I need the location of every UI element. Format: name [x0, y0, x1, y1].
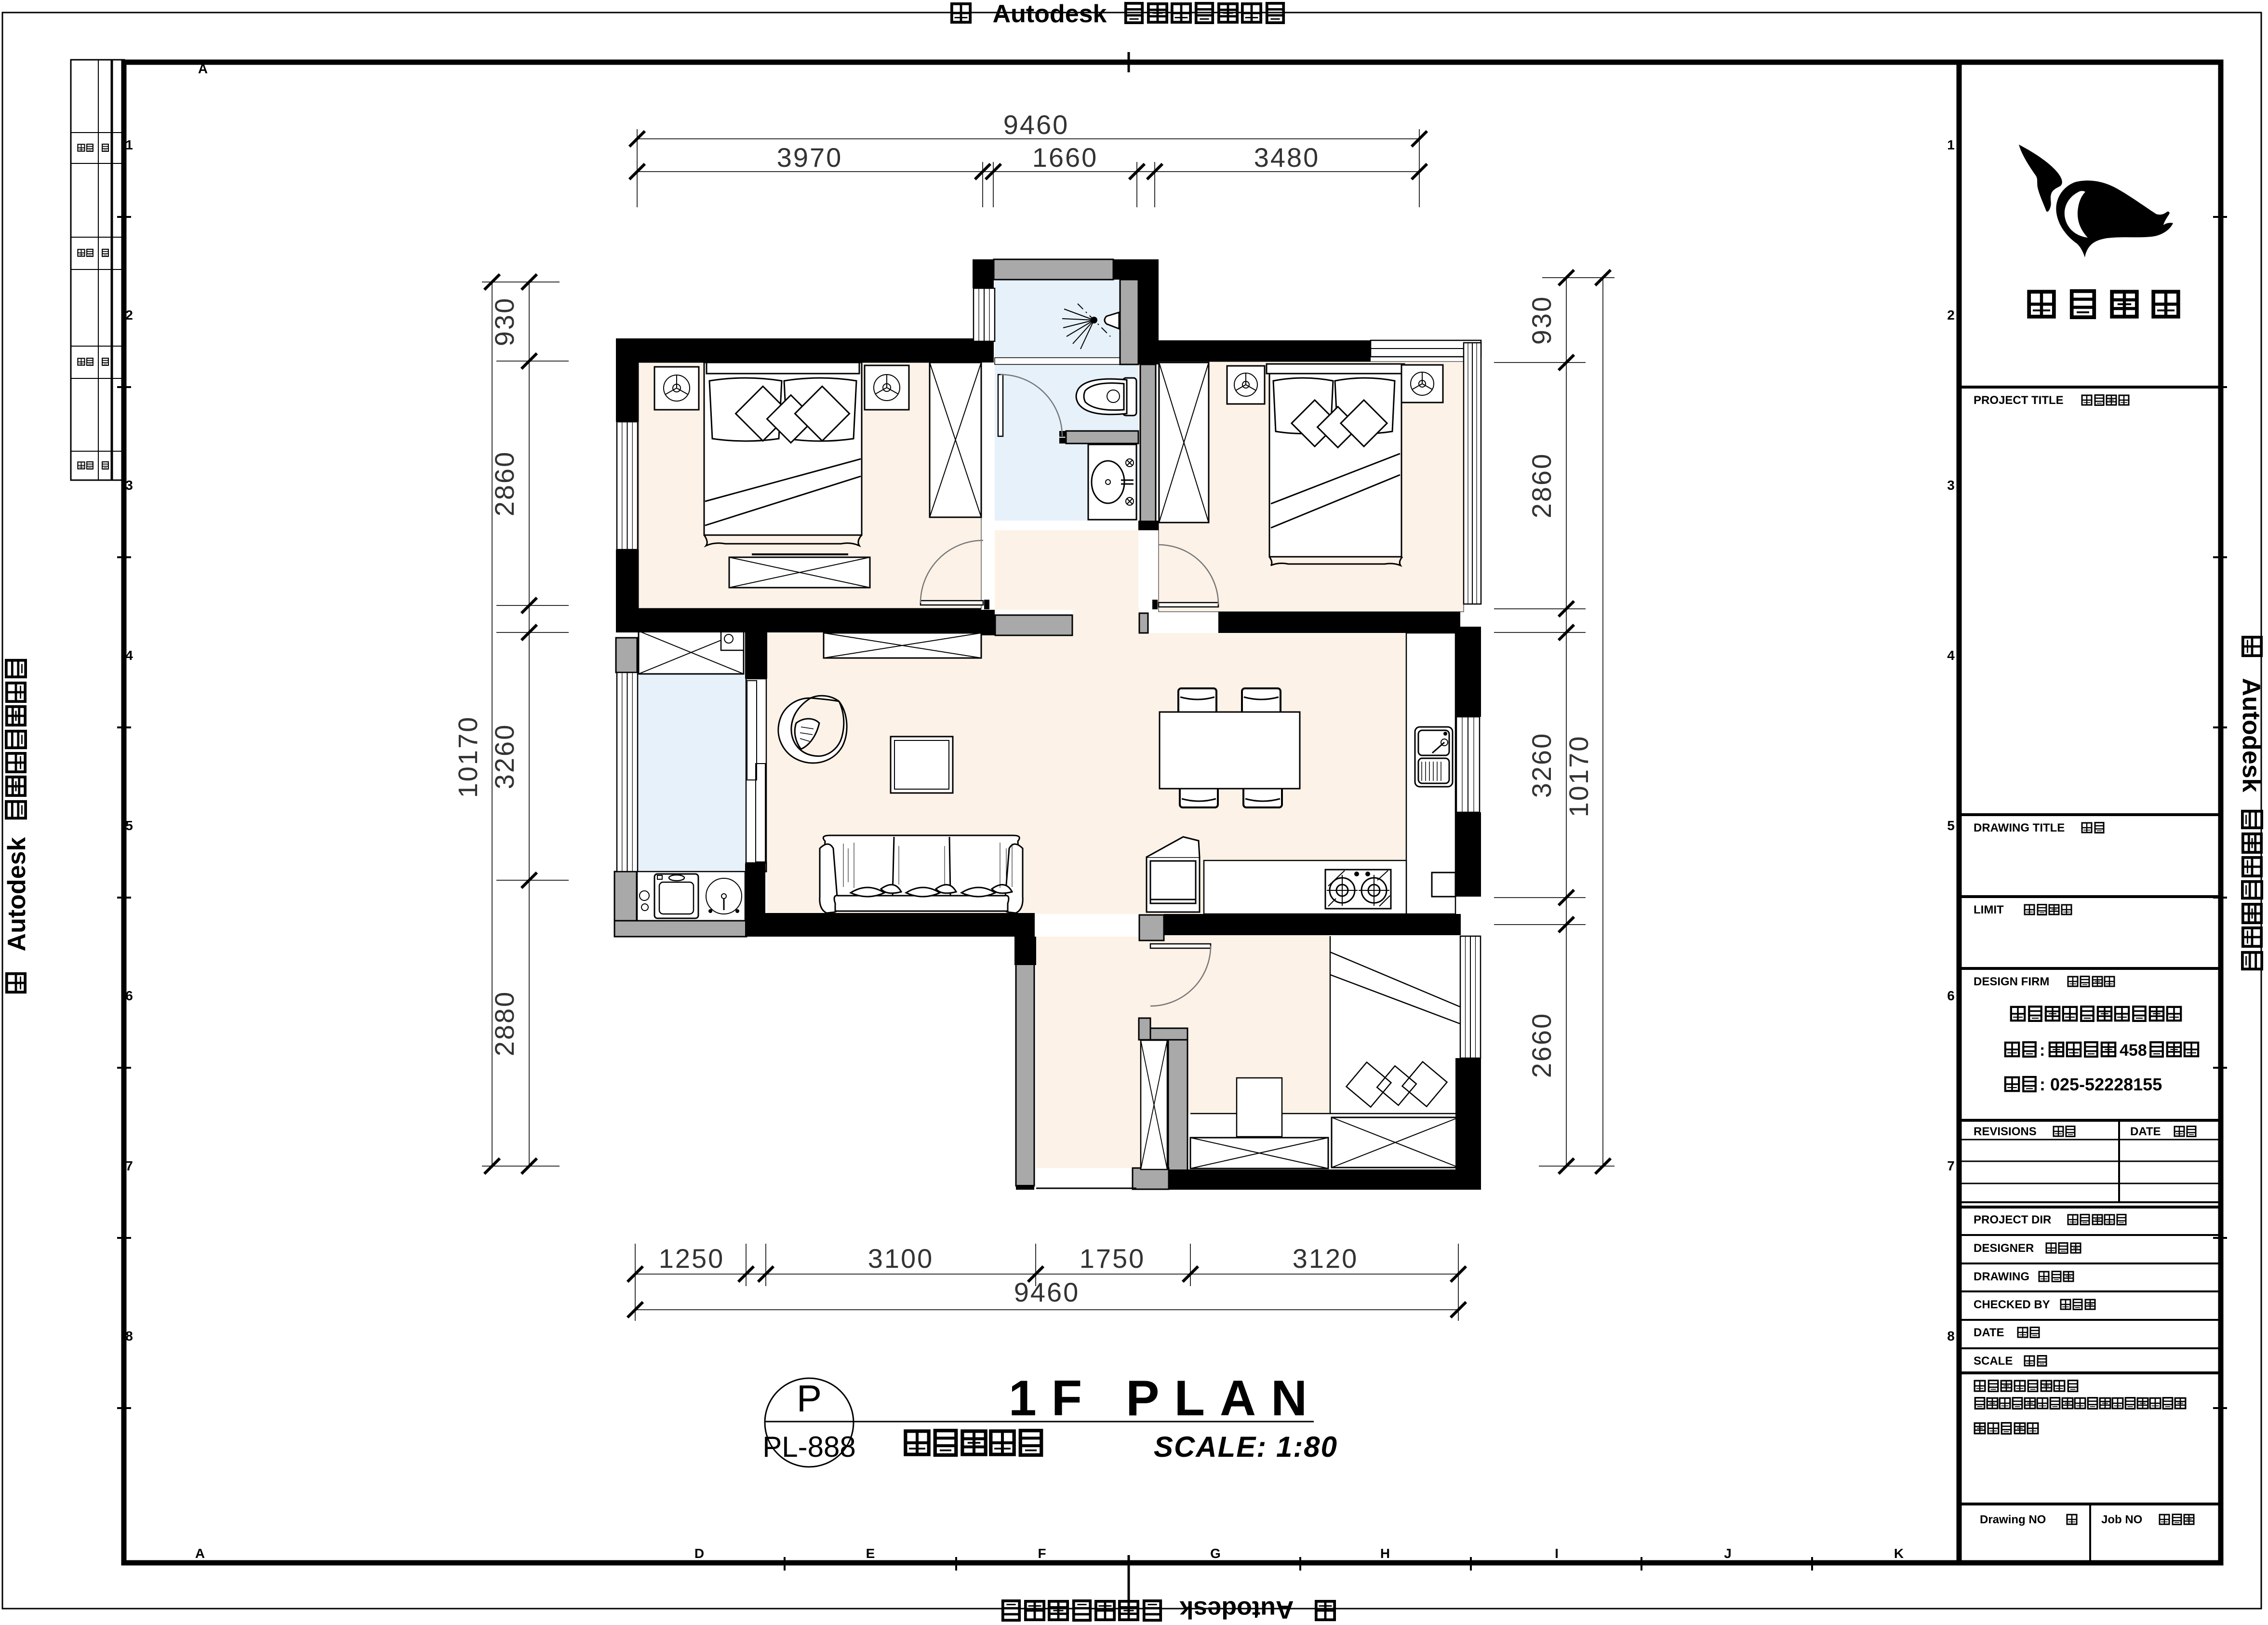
- svg-text:D: D: [694, 1546, 704, 1561]
- svg-text:PROJECT TITLE: PROJECT TITLE: [1974, 394, 2064, 407]
- svg-text:2660: 2660: [1526, 1012, 1557, 1078]
- svg-text:8: 8: [125, 1329, 133, 1343]
- svg-text:1: 1: [1947, 137, 1955, 152]
- svg-text:3970: 3970: [777, 142, 843, 173]
- svg-text:3260: 3260: [489, 724, 520, 790]
- svg-text:Job NO: Job NO: [2101, 1513, 2142, 1526]
- svg-text:2: 2: [125, 308, 133, 322]
- svg-text:930: 930: [489, 297, 520, 346]
- svg-text:Autodesk: Autodesk: [2237, 678, 2265, 792]
- svg-text:5: 5: [125, 818, 133, 833]
- svg-text:K: K: [1894, 1546, 1904, 1561]
- svg-text:E: E: [866, 1546, 875, 1561]
- svg-text:1660: 1660: [1032, 142, 1098, 173]
- svg-text:9460: 9460: [1003, 109, 1069, 140]
- svg-text:3120: 3120: [1293, 1243, 1359, 1274]
- svg-text:3100: 3100: [868, 1243, 934, 1274]
- svg-text:7: 7: [1947, 1158, 1955, 1173]
- svg-text:CHECKED BY: CHECKED BY: [1974, 1298, 2050, 1311]
- svg-text:2860: 2860: [489, 451, 520, 517]
- svg-text:Autodesk: Autodesk: [1179, 1596, 1294, 1624]
- svg-text:10170: 10170: [453, 716, 483, 798]
- svg-text:3480: 3480: [1254, 142, 1320, 173]
- svg-text:9460: 9460: [1014, 1277, 1080, 1307]
- svg-text:PROJECT DIR: PROJECT DIR: [1974, 1213, 2051, 1226]
- svg-text:5: 5: [1947, 818, 1955, 833]
- svg-text:DRAWING: DRAWING: [1974, 1270, 2029, 1283]
- svg-text:7: 7: [125, 1158, 133, 1173]
- svg-text:10170: 10170: [1563, 735, 1594, 818]
- svg-text:J: J: [1724, 1546, 1732, 1561]
- svg-text:6: 6: [1947, 988, 1955, 1003]
- svg-text:3: 3: [1947, 478, 1955, 493]
- svg-text:Autodesk: Autodesk: [3, 837, 31, 951]
- svg-text:DATE: DATE: [1974, 1326, 2004, 1339]
- svg-text:A: A: [198, 61, 208, 76]
- svg-text:SCALE: 1:80: SCALE: 1:80: [1154, 1431, 1338, 1463]
- svg-text:6: 6: [125, 988, 133, 1003]
- svg-text:REVISIONS: REVISIONS: [1974, 1125, 2037, 1138]
- svg-text:4: 4: [125, 648, 133, 663]
- svg-text:DATE: DATE: [2130, 1125, 2161, 1138]
- svg-text:PL-888: PL-888: [762, 1431, 855, 1463]
- svg-text:3: 3: [125, 478, 133, 493]
- svg-text:DESIGNER: DESIGNER: [1974, 1242, 2034, 1255]
- svg-text:LIMIT: LIMIT: [1974, 903, 2004, 916]
- svg-text:DRAWING TITLE: DRAWING TITLE: [1974, 821, 2065, 834]
- svg-text:458: 458: [2120, 1041, 2147, 1060]
- svg-text:1750: 1750: [1080, 1243, 1146, 1274]
- svg-text:SCALE: SCALE: [1974, 1355, 2013, 1368]
- svg-text:930: 930: [1526, 295, 1557, 345]
- svg-text:1250: 1250: [659, 1243, 725, 1274]
- svg-text:2: 2: [1947, 308, 1955, 322]
- svg-text:3260: 3260: [1526, 732, 1557, 798]
- svg-text:A: A: [195, 1546, 205, 1561]
- svg-text:DESIGN FIRM: DESIGN FIRM: [1974, 975, 2049, 988]
- svg-text:I: I: [1555, 1546, 1559, 1561]
- svg-text:1: 1: [125, 137, 133, 152]
- svg-text:G: G: [1210, 1546, 1221, 1561]
- svg-text:H: H: [1380, 1546, 1390, 1561]
- svg-text:2880: 2880: [489, 991, 520, 1057]
- svg-text:Drawing NO: Drawing NO: [1980, 1513, 2046, 1526]
- svg-text:2860: 2860: [1526, 453, 1557, 519]
- svg-text:P: P: [797, 1377, 822, 1420]
- svg-text:F: F: [1038, 1546, 1046, 1561]
- svg-text:Autodesk: Autodesk: [993, 0, 1107, 28]
- svg-text:: 025-52228155: : 025-52228155: [2040, 1074, 2162, 1094]
- svg-text:4: 4: [1947, 648, 1955, 663]
- svg-text::: :: [2040, 1041, 2045, 1060]
- svg-text:8: 8: [1947, 1329, 1955, 1343]
- svg-text:1F PLAN: 1F PLAN: [1009, 1370, 1322, 1426]
